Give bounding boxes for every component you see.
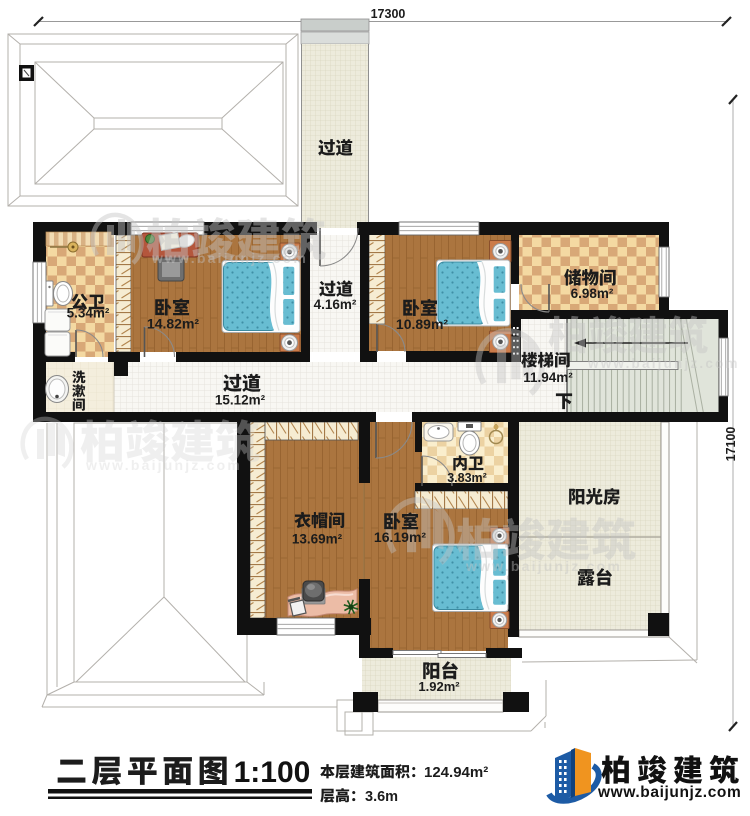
svg-text:www.baijunjz.com: www.baijunjz.com: [587, 356, 740, 371]
svg-text:14.82m²: 14.82m²: [147, 316, 199, 332]
svg-text:www.baijunjz.com: www.baijunjz.com: [465, 558, 622, 574]
svg-text:17100: 17100: [724, 427, 738, 462]
svg-text:1.92m²: 1.92m²: [418, 679, 460, 694]
svg-text:11.94m²: 11.94m²: [523, 370, 573, 385]
svg-text:16.19m²: 16.19m²: [374, 529, 426, 545]
svg-text:124.94m²: 124.94m²: [424, 764, 488, 781]
svg-text:6.98m²: 6.98m²: [571, 286, 614, 301]
svg-text:www.baijunjz.com: www.baijunjz.com: [151, 250, 308, 266]
svg-text:13.69m²: 13.69m²: [292, 532, 343, 547]
svg-text:4.16m²: 4.16m²: [314, 297, 357, 312]
svg-text:15.12m²: 15.12m²: [215, 393, 266, 408]
svg-text:www.baijunjz.com: www.baijunjz.com: [85, 457, 242, 473]
svg-text:5.34m²: 5.34m²: [67, 306, 110, 321]
svg-text:3.6m: 3.6m: [365, 789, 398, 805]
svg-text:10.89m²: 10.89m²: [396, 316, 448, 332]
svg-text:www.baijunjz.com: www.baijunjz.com: [597, 784, 741, 801]
svg-text:17300: 17300: [371, 7, 406, 21]
svg-text:1:100: 1:100: [234, 756, 311, 789]
svg-text:3.83m²: 3.83m²: [447, 471, 487, 485]
